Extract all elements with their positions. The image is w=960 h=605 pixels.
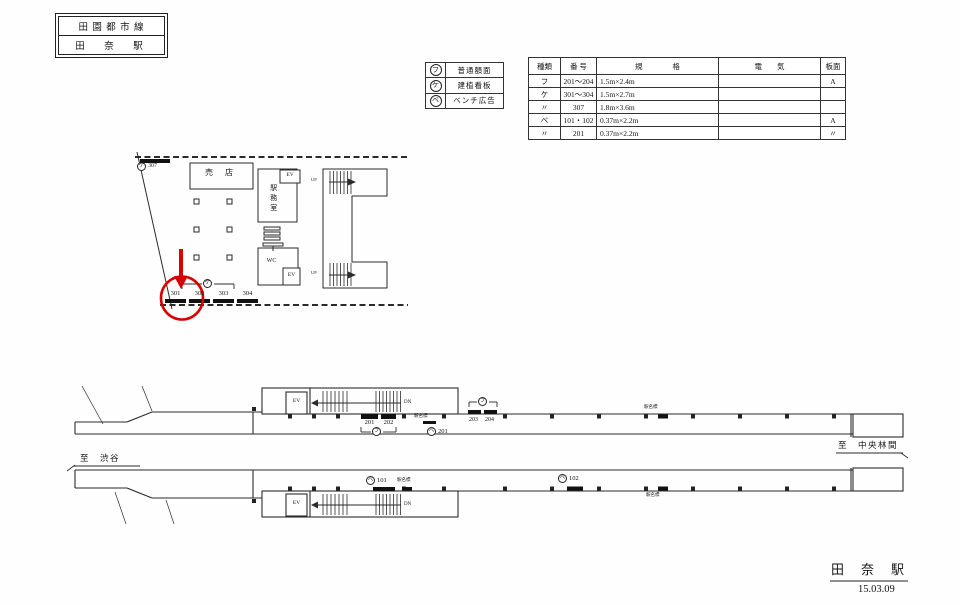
legend-label: 普通額面: [446, 63, 504, 78]
shop-label: 売 店: [190, 169, 253, 178]
cell-spec: 0.37m×2.2m: [597, 127, 719, 140]
cell-spec: 1.5m×2.7m: [597, 88, 719, 101]
wc-label: WC: [260, 258, 283, 265]
station-sign-label: 駅名標: [644, 405, 658, 410]
bench-201-label: ベ 201: [427, 427, 448, 436]
cell-spec: 0.37m×2.2m: [597, 114, 719, 127]
bench-101-label: ベ 101: [366, 476, 387, 485]
cell-board: A: [821, 75, 846, 88]
spec-row: ベ 101・102 0.37m×2.2m A: [529, 114, 846, 127]
line-station-title-box: 田 園 都 市 線 田 奈 駅: [55, 13, 168, 58]
col-spec: 規 格: [597, 58, 719, 75]
line-name: 田 園 都 市 線: [59, 17, 164, 36]
sign-number-201: 201: [360, 419, 379, 426]
platform-posts: [252, 487, 836, 504]
lower-elevation-linework: [67, 465, 903, 524]
cell-electric: [719, 101, 821, 114]
spec-table: 種類 番 号 規 格 電 気 板面 フ 201〜204 1.5m×2.4m A …: [528, 57, 846, 140]
footer-station-name: 田 奈 駅: [831, 563, 906, 577]
sign-307-label: ケ 307: [137, 162, 157, 171]
ticket-gate: [264, 232, 280, 235]
circled-fu-icon: フ: [478, 397, 487, 406]
legend-row: フ 普通額面: [426, 63, 504, 78]
sign-bar-302: [189, 299, 210, 303]
dn-label: DN: [404, 502, 411, 508]
ticket-gate: [264, 227, 280, 230]
circled-be-icon: ベ: [366, 476, 375, 485]
station-sign-label: 駅名標: [397, 478, 411, 483]
pillar: [194, 255, 199, 260]
direction-label-shibuya: 至 渋谷: [80, 454, 120, 463]
station-ad-layout-sheet: 田 園 都 市 線 田 奈 駅 フ 普通額面 ケ 建植看板 ベ ベンチ広告 種類…: [0, 0, 960, 605]
cell-type: 〃: [529, 101, 561, 114]
bench-102-label: ベ 102: [558, 474, 579, 483]
ticket-gate-end: [263, 243, 283, 246]
bench-201-number: 201: [438, 428, 448, 435]
col-type: 種類: [529, 58, 561, 75]
stairs-bottom: [330, 263, 351, 286]
circled-be-icon: ベ: [558, 474, 567, 483]
site-boundary-line: [137, 152, 172, 309]
spec-row: 〃 201 0.37m×2.2m 〃: [529, 127, 846, 140]
pillar: [194, 227, 199, 232]
cell-number: 201: [561, 127, 597, 140]
spec-row: 〃 307 1.8m×3.6m: [529, 101, 846, 114]
cell-number: 201〜204: [561, 75, 597, 88]
circled-ke-icon: ケ: [203, 279, 212, 288]
col-electric: 電 気: [719, 58, 821, 75]
bench-bar-102: [567, 487, 583, 491]
sign-number-304: 304: [237, 290, 258, 297]
cell-board: 〃: [821, 127, 846, 140]
bench-bar-101: [373, 487, 395, 491]
circled-be-icon: ベ: [430, 95, 442, 107]
bench-bar-201: [423, 421, 436, 424]
sign-bar-303: [213, 299, 234, 303]
cell-electric: [719, 75, 821, 88]
station-name: 田 奈 駅: [59, 36, 164, 54]
pillar: [227, 255, 232, 260]
platform-end-box: [853, 414, 903, 437]
circled-ke-icon: ケ: [137, 162, 146, 171]
sign-bar-203: [468, 410, 481, 414]
col-number: 番 号: [561, 58, 597, 75]
floor-plan-linework: [135, 152, 408, 309]
circled-fu-icon: フ: [372, 427, 381, 436]
cell-number: 307: [561, 101, 597, 114]
sign-bar-304: [237, 299, 258, 303]
cell-board: [821, 88, 846, 101]
bench-102-number: 102: [569, 475, 579, 482]
cell-type: フ: [529, 75, 561, 88]
ticket-gate: [264, 237, 280, 240]
cell-electric: [719, 127, 821, 140]
sign-number-303: 303: [213, 290, 234, 297]
pillar: [194, 199, 199, 204]
pillar: [227, 227, 232, 232]
cell-board: [821, 101, 846, 114]
platform-end-box: [853, 468, 903, 491]
station-sign-bar: [658, 415, 668, 419]
legend-label: ベンチ広告: [446, 93, 504, 108]
up-label-bottom: UP: [311, 271, 317, 276]
spec-row: ケ 301〜304 1.5m×2.7m: [529, 88, 846, 101]
cell-spec: 1.8m×3.6m: [597, 101, 719, 114]
pillar: [227, 199, 232, 204]
spec-row: フ 201〜204 1.5m×2.4m A: [529, 75, 846, 88]
legend-table: フ 普通額面 ケ 建植看板 ベ ベンチ広告: [425, 62, 504, 109]
ev-label: EV: [287, 500, 306, 506]
sign-bar-301: [165, 299, 186, 303]
dn-label: DN: [404, 400, 411, 406]
legend-row: ベ ベンチ広告: [426, 93, 504, 108]
station-sign-bar: [402, 487, 412, 491]
up-label-top: UP: [311, 178, 317, 183]
cell-type: ベ: [529, 114, 561, 127]
sign-bar-204: [484, 410, 497, 414]
cell-type: ケ: [529, 88, 561, 101]
spec-header-row: 種類 番 号 規 格 電 気 板面: [529, 58, 846, 75]
ev-label-bottom: EV: [283, 272, 300, 278]
station-sign-label: 駅名標: [414, 414, 428, 419]
cell-number: 101・102: [561, 114, 597, 127]
overpass-outline: [323, 169, 387, 288]
cell-number: 301〜304: [561, 88, 597, 101]
sign-number-204: 204: [480, 417, 499, 424]
cell-type: 〃: [529, 127, 561, 140]
office-label: 駅務室: [269, 184, 277, 214]
ev-label-top: EV: [280, 172, 300, 178]
cell-spec: 1.5m×2.4m: [597, 75, 719, 88]
circled-ke-icon: ケ: [430, 80, 442, 92]
stairs-top: [330, 171, 351, 194]
circled-be-icon: ベ: [427, 427, 436, 436]
sign-number-202: 202: [379, 419, 398, 426]
cell-board: A: [821, 114, 846, 127]
cell-electric: [719, 88, 821, 101]
col-board: 板面: [821, 58, 846, 75]
station-sign-bar: [658, 487, 668, 491]
station-sign-label: 駅名標: [646, 493, 660, 498]
sign-number-301: 301: [165, 290, 186, 297]
sign-307-number: 307: [148, 163, 157, 170]
circled-fu-icon: フ: [430, 64, 442, 76]
footer-date: 15.03.09: [858, 584, 895, 596]
cell-electric: [719, 114, 821, 127]
legend-label: 建植看板: [446, 78, 504, 93]
legend-row: ケ 建植看板: [426, 78, 504, 93]
bench-101-number: 101: [377, 477, 387, 484]
ev-label: EV: [287, 398, 306, 404]
sign-number-302: 302: [189, 290, 210, 297]
platform-posts: [252, 407, 836, 419]
direction-label-chuorinkan: 至 中央林間: [838, 441, 898, 450]
